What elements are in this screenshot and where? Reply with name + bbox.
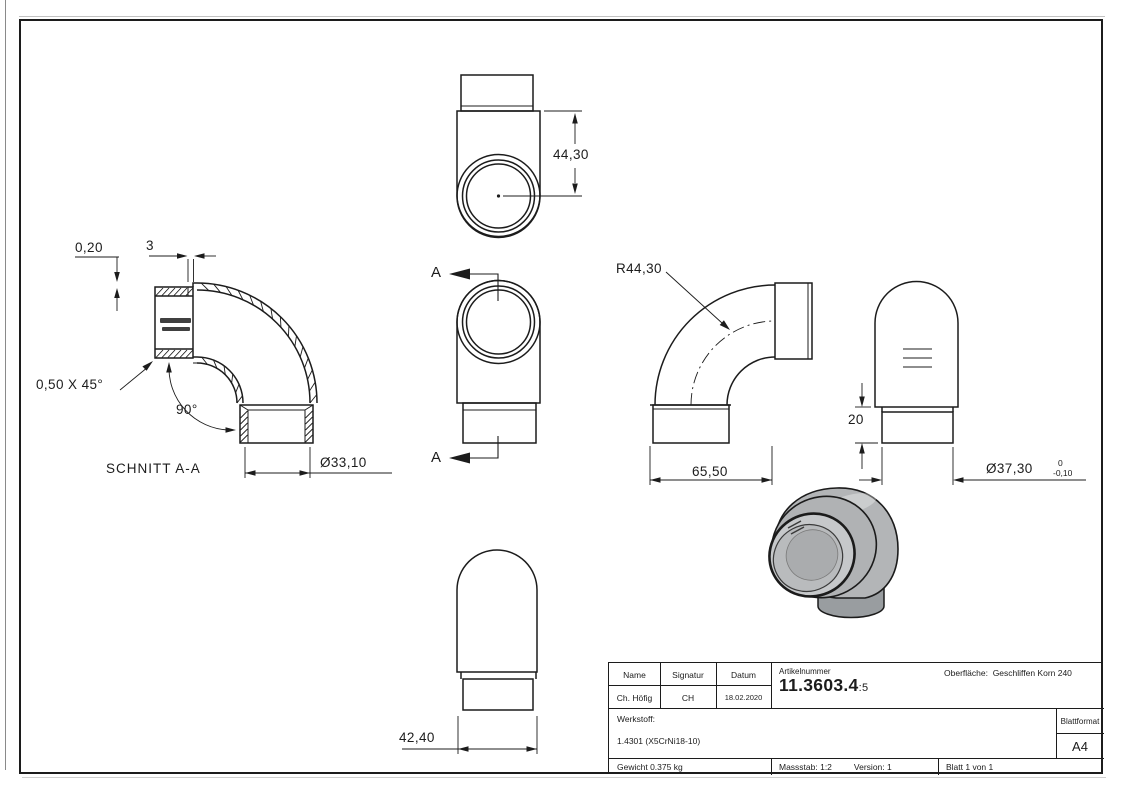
artikelnummer-number: 11.3603.4 bbox=[779, 675, 859, 695]
dim-wall-label: 3 bbox=[146, 238, 154, 253]
front-view-arrows bbox=[650, 320, 772, 483]
part-stamp-marking bbox=[162, 327, 190, 331]
section-arrow-label-bottom: A bbox=[431, 449, 441, 466]
radius-label: R44,30 bbox=[616, 261, 662, 276]
header-datum: Datum bbox=[716, 663, 771, 686]
front-view-lines bbox=[650, 283, 812, 443]
dia-inner-label: Ø33,10 bbox=[320, 455, 367, 470]
value-datum: 18.02.2020 bbox=[716, 686, 771, 709]
top-view-lines bbox=[457, 75, 540, 238]
dia-outer-label: Ø37,30 bbox=[986, 461, 1033, 476]
bottom-view-lines bbox=[457, 281, 540, 444]
dim-socket-label: 20 bbox=[846, 412, 866, 427]
label-oberflaeche: Oberfläche: bbox=[944, 668, 988, 678]
value-name: Ch. Höfig bbox=[609, 686, 660, 709]
artikelnummer-suffix: :5 bbox=[859, 682, 869, 694]
value-werkstoff: 1.4301 (X5CrNi18-10) bbox=[617, 736, 700, 746]
section-hatching bbox=[156, 283, 317, 442]
value-blattformat: A4 bbox=[1056, 734, 1104, 759]
side-view-arrows bbox=[859, 397, 963, 483]
value-signatur: CH bbox=[660, 686, 716, 709]
titleblock-gridline bbox=[771, 663, 772, 709]
label-blattformat: Blattformat bbox=[1056, 709, 1104, 734]
tolerance-upper: 0 bbox=[1058, 458, 1063, 468]
angle-label: 90° bbox=[176, 402, 198, 417]
drawing-sheet: 0,20 3 0,50 X 45° 90° SCHNITT A-A Ø33,10… bbox=[0, 0, 1123, 794]
title-block: Name Signatur Datum Ch. Höfig CH 18.02.2… bbox=[608, 662, 1103, 774]
dim-height-label: 44,30 bbox=[551, 147, 591, 162]
part-stamp-marking bbox=[160, 318, 191, 323]
massstab-cell: Massstab: 1:2 Version: 1 bbox=[771, 759, 938, 775]
tolerance-lower: -0,10 bbox=[1053, 468, 1072, 478]
chamfer-label: 0,50 X 45° bbox=[36, 377, 103, 392]
header-name: Name bbox=[609, 663, 660, 686]
value-version: Version: 1 bbox=[854, 762, 892, 772]
artikelnummer-value: 11.3603.4:5 bbox=[779, 675, 868, 696]
label-werkstoff: Werkstoff: bbox=[617, 714, 655, 724]
section-arrow-label-top: A bbox=[431, 264, 441, 281]
value-massstab: Massstab: 1:2 bbox=[779, 762, 832, 772]
section-view-lines bbox=[155, 283, 317, 443]
dim-width-label: 65,50 bbox=[690, 464, 730, 479]
section-title: SCHNITT A-A bbox=[106, 461, 201, 476]
side-view-dimensions bbox=[855, 383, 1086, 485]
bottom-side-view-lines bbox=[457, 550, 537, 710]
dim-bottom-width-label: 42,40 bbox=[399, 730, 435, 745]
section-cut-arrows bbox=[449, 269, 470, 464]
model-3d-render bbox=[754, 478, 898, 618]
value-oberflaeche: Geschliffen Korn 240 bbox=[993, 668, 1072, 678]
oberflaeche-row: Oberfläche: Geschliffen Korn 240 bbox=[944, 668, 1072, 678]
side-view-lines bbox=[875, 281, 958, 443]
dim-step-label: 0,20 bbox=[75, 240, 103, 255]
value-gewicht: Gewicht 0.375 kg bbox=[609, 759, 771, 775]
header-signatur: Signatur bbox=[660, 663, 716, 686]
value-blatt: Blatt 1 von 1 bbox=[938, 759, 1104, 775]
